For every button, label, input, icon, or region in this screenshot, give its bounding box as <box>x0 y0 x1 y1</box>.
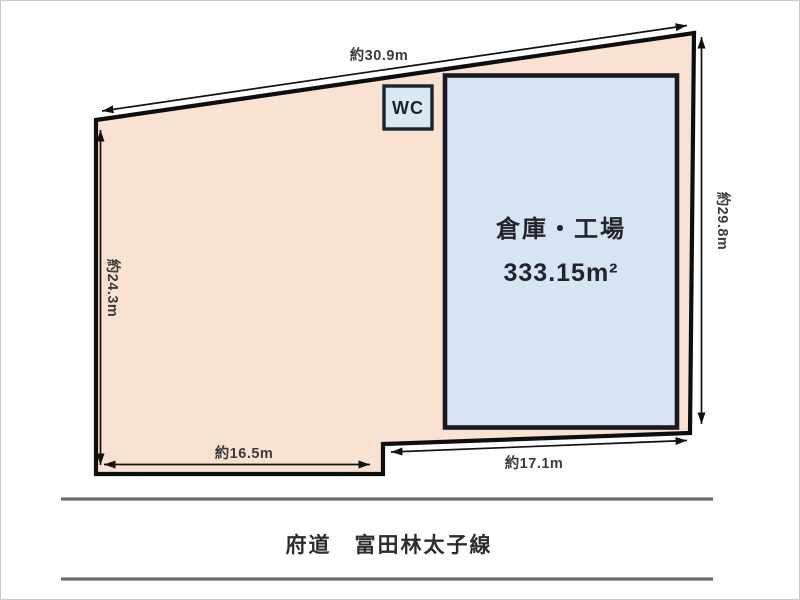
dim-bottom-right-label: 約17.1m <box>505 454 564 472</box>
dim-right-label: 約29.8m <box>714 192 732 251</box>
site-plan-canvas: WC 倉庫・工場 333.15m² 約30.9m 約24.3m 約29.8m 約… <box>0 0 800 600</box>
dim-left-label: 約24.3m <box>104 259 122 318</box>
dim-bottom-left-label: 約16.5m <box>215 444 274 462</box>
dim-top-label: 約30.9m <box>350 46 409 64</box>
building-name-label: 倉庫・工場 <box>495 215 626 243</box>
road-name-label: 府道 富田林太子線 <box>286 533 493 557</box>
site-plan-diagram: WC 倉庫・工場 333.15m² 約30.9m 約24.3m 約29.8m 約… <box>1 1 799 599</box>
building-outline <box>445 76 677 428</box>
building-area-label: 333.15m² <box>503 259 618 287</box>
wc-label: WC <box>392 98 424 118</box>
